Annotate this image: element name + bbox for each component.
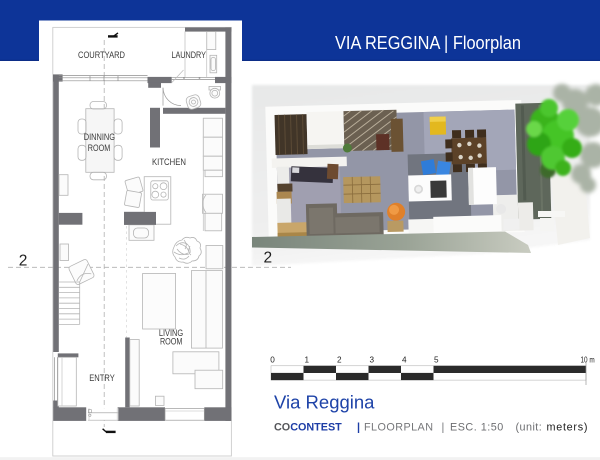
svg-text:DINNING: DINNING	[84, 132, 115, 142]
svg-text:Via Reggina: Via Reggina	[274, 392, 375, 413]
svg-text:1: 1	[305, 355, 310, 364]
svg-text:4: 4	[402, 355, 407, 364]
svg-text:2: 2	[19, 253, 28, 270]
svg-text:CONTEST: CONTEST	[290, 421, 342, 433]
svg-text:COURTYARD: COURTYARD	[78, 50, 125, 60]
svg-text:10 m: 10 m	[581, 355, 595, 364]
svg-text:meters): meters)	[547, 421, 589, 433]
svg-text:5: 5	[434, 355, 439, 364]
svg-text:FLOORPLAN: FLOORPLAN	[364, 421, 433, 433]
svg-text:|: |	[357, 421, 360, 433]
svg-text:ROOM: ROOM	[88, 143, 111, 153]
svg-text:2: 2	[264, 250, 273, 267]
svg-text:KITCHEN: KITCHEN	[152, 157, 186, 167]
svg-text:|: |	[442, 421, 445, 433]
svg-text:2: 2	[337, 355, 342, 364]
svg-text:LAUNDRY: LAUNDRY	[171, 50, 206, 60]
svg-text:(unit:: (unit:	[516, 421, 543, 433]
svg-text:ROOM: ROOM	[160, 337, 183, 347]
svg-text:3: 3	[370, 355, 375, 364]
svg-text:0: 0	[270, 355, 275, 364]
svg-text:VIA REGGINA | Floorplan: VIA REGGINA | Floorplan	[335, 32, 521, 53]
svg-text:ENTRY: ENTRY	[89, 373, 115, 383]
svg-text:ESC. 1:50: ESC. 1:50	[450, 421, 504, 433]
svg-text:CO: CO	[274, 421, 290, 433]
